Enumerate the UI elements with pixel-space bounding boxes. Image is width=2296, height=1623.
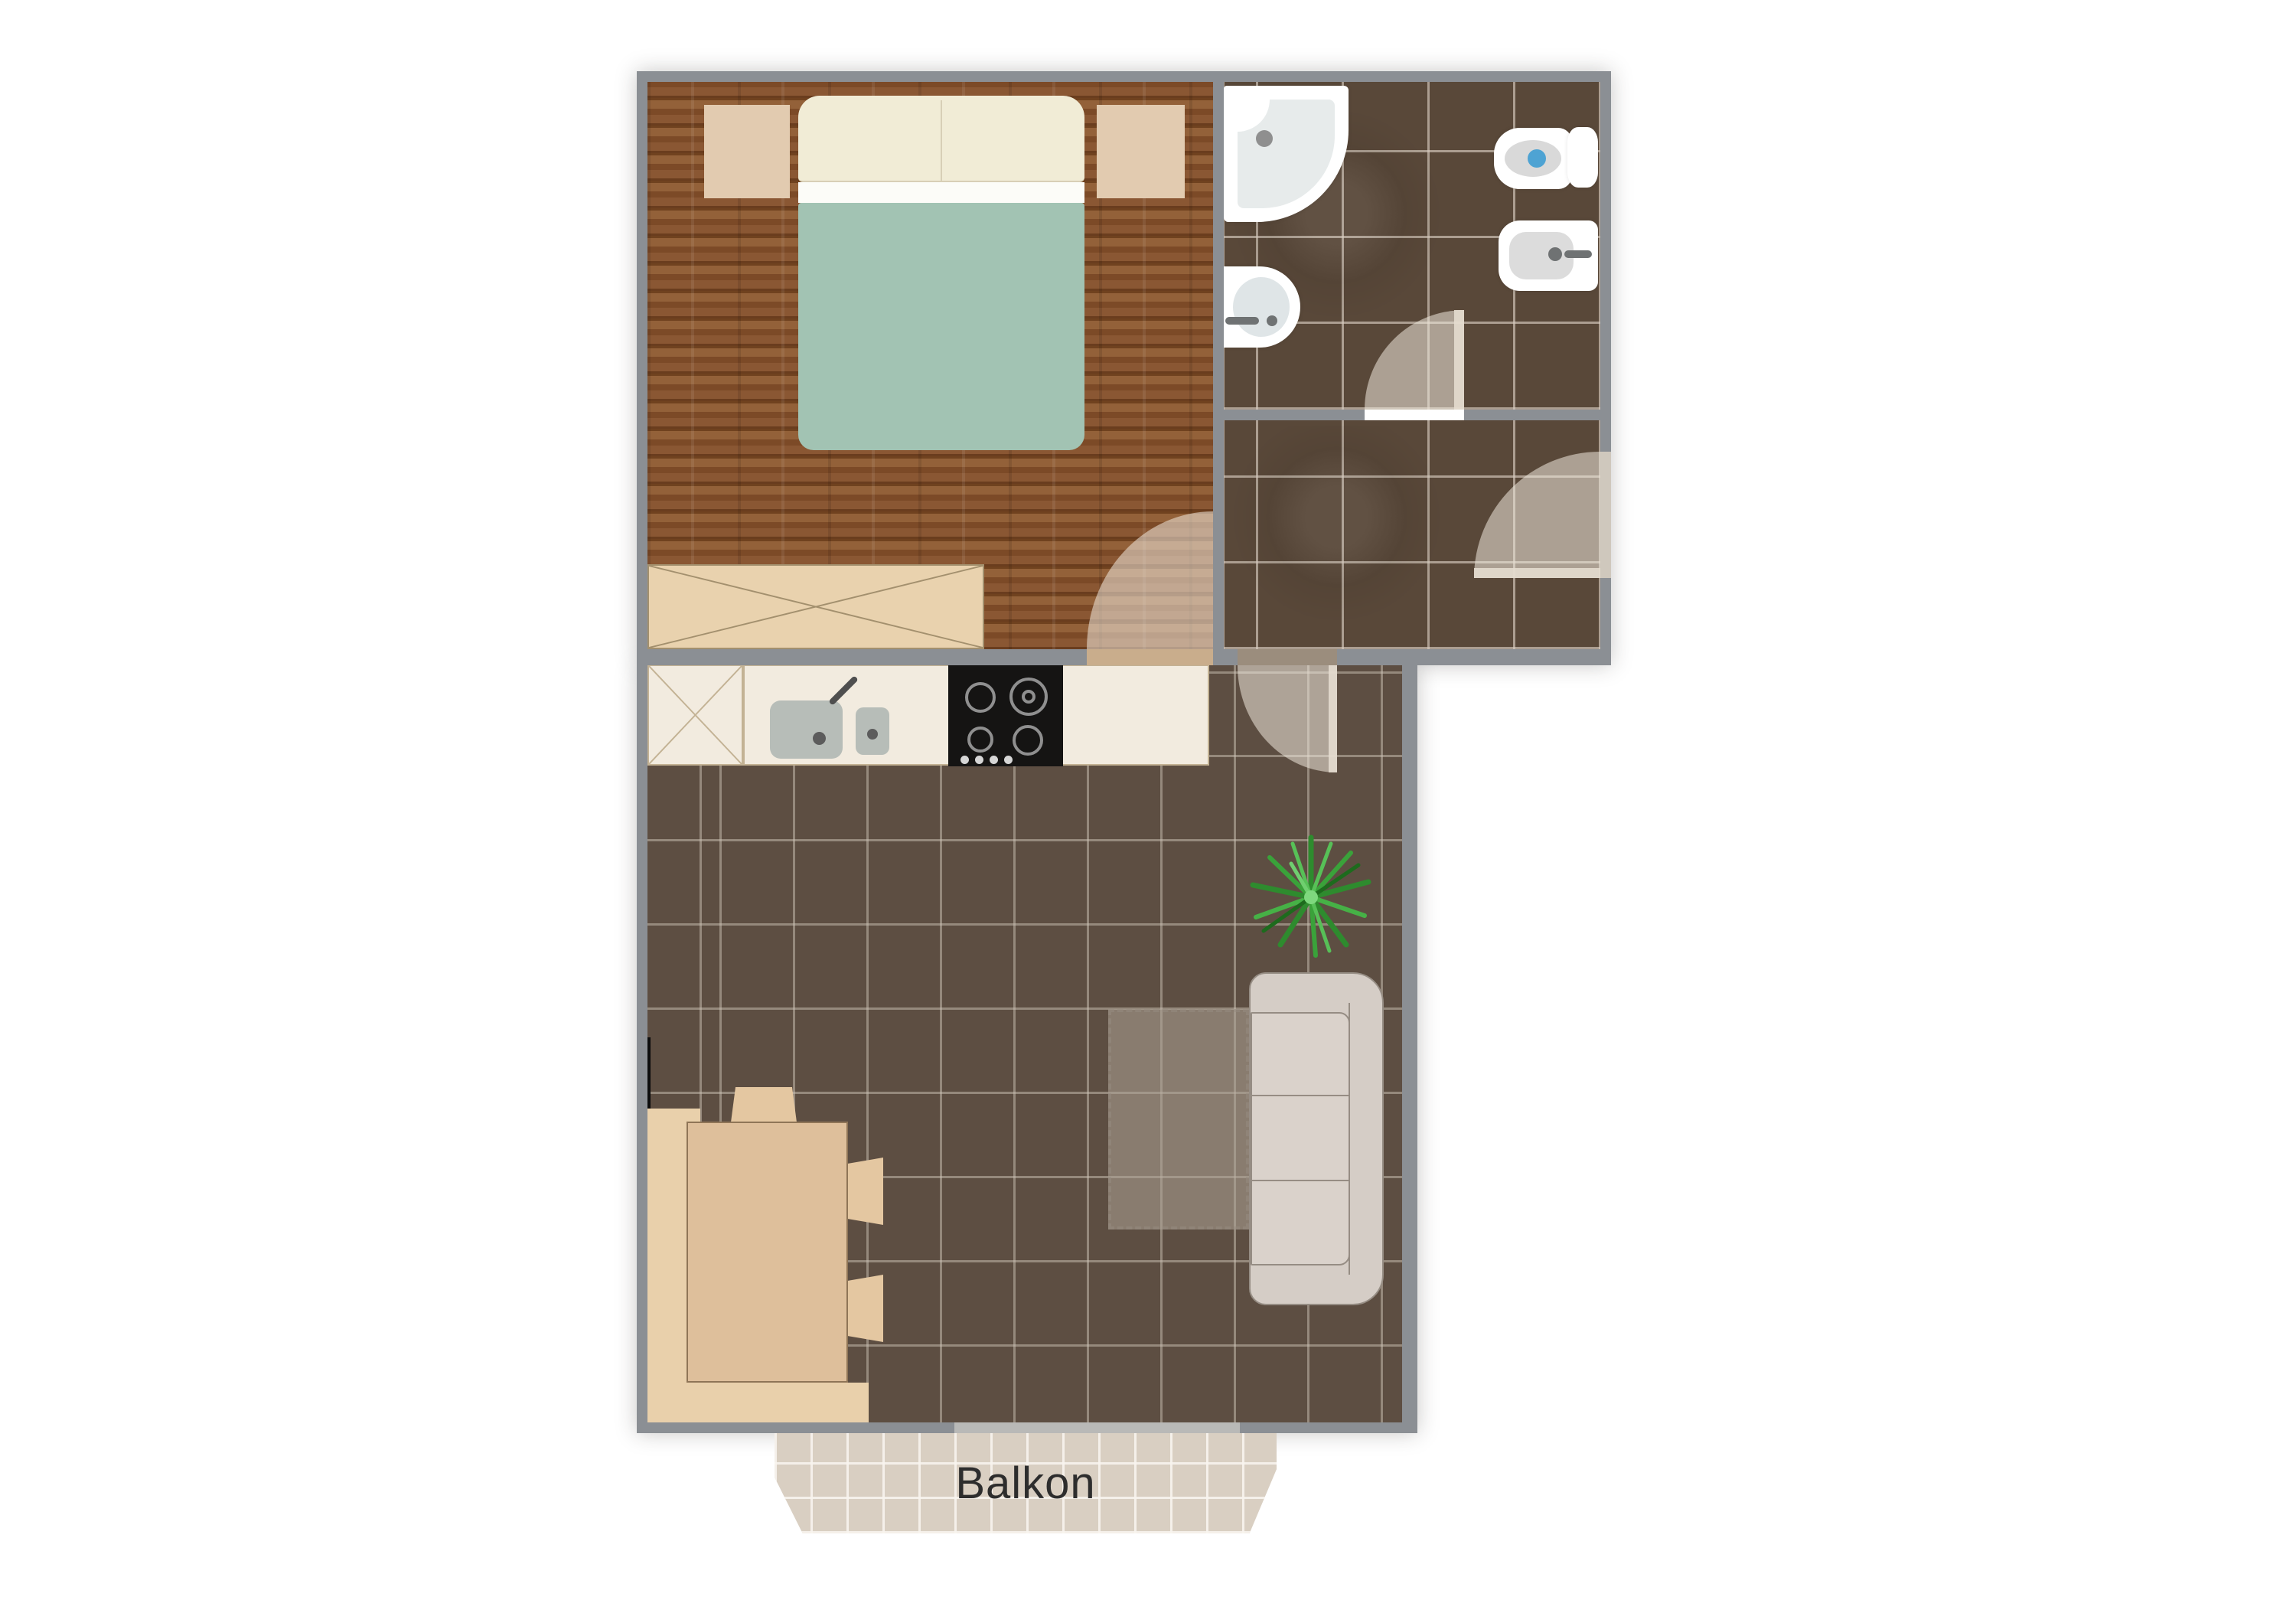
kitchen-door-leaf: [1329, 665, 1337, 772]
wardrobe-x-mark: [649, 566, 983, 648]
floor-plan: Balkon: [0, 0, 2296, 1623]
bidet-bowl: [1509, 232, 1574, 279]
bed-blanket: [798, 203, 1084, 450]
shower-drain: [1256, 130, 1273, 147]
kitchen-sink: [770, 698, 892, 759]
bedroom-door-opening: [1087, 649, 1213, 665]
cooktop-knob-1: [960, 756, 969, 764]
entrance-door-leaf: [1474, 568, 1600, 578]
dining-table: [687, 1122, 848, 1383]
cooktop-knob-3: [990, 756, 998, 764]
cabinet-x-mark: [649, 666, 742, 764]
entrance-opening: [1600, 452, 1611, 578]
sofa-cushion-1: [1251, 1012, 1350, 1096]
toilet-water: [1528, 149, 1546, 168]
double-bed: [798, 96, 1084, 450]
burner-bottom-right: [1013, 725, 1043, 756]
burner-top-right-inner: [1022, 690, 1035, 704]
toilet-cistern: [1567, 127, 1598, 188]
wall-left: [637, 71, 647, 1433]
bidet-faucet-handle: [1564, 250, 1592, 258]
wall-bedroom-bottom: [647, 649, 1087, 665]
sofa: [1249, 972, 1384, 1305]
sofa-cushion-2: [1251, 1095, 1350, 1181]
wall-bath-hall-2: [1464, 410, 1600, 420]
kitchen-counter-corner-cabinet: [647, 665, 743, 766]
wall-top: [637, 71, 1611, 82]
rug: [1108, 1009, 1249, 1229]
bathroom-door-leaf: [1454, 310, 1464, 410]
washbasin-faucet: [1225, 317, 1259, 325]
balcony: Balkon: [775, 1433, 1277, 1533]
drainer-drain: [867, 729, 878, 740]
wall-bath-hall-1: [1224, 410, 1365, 420]
balcony-label: Balkon: [775, 1458, 1277, 1509]
sink-drain: [813, 732, 826, 745]
bidet-faucet: [1548, 247, 1562, 261]
wall-right-upper: [1600, 71, 1611, 452]
dining-chair-right-2: [848, 1275, 883, 1342]
sofa-cushion-3: [1251, 1180, 1350, 1265]
plant-icon: [1246, 832, 1376, 962]
pillow-divider: [941, 100, 942, 181]
dining-chair-right-1: [848, 1158, 883, 1225]
bed-sheet-fold: [798, 182, 1084, 203]
wall-hall-bottom-2: [1337, 649, 1611, 665]
burner-top-left: [965, 682, 996, 713]
bidet: [1499, 220, 1598, 291]
burner-bottom-left: [967, 727, 993, 753]
sink-basin: [770, 700, 843, 759]
balcony-door: [954, 1422, 1240, 1433]
bench-bottom: [647, 1383, 869, 1425]
wardrobe: [647, 564, 984, 649]
wall-living-right: [1402, 665, 1417, 1433]
cooktop: [948, 661, 1063, 766]
washbasin-drain: [1267, 315, 1277, 326]
wall-bedroom-bathroom: [1213, 82, 1224, 665]
washbasin-bowl: [1233, 277, 1290, 337]
nightstand-left: [704, 105, 790, 198]
cooktop-knob-4: [1004, 756, 1013, 764]
cooktop-knob-2: [975, 756, 983, 764]
potted-plant: [1246, 832, 1376, 962]
wall-hall-bottom-1: [1213, 649, 1238, 665]
kitchen-door-opening: [1238, 649, 1337, 665]
dining-chair-top: [731, 1087, 797, 1122]
nightstand-right: [1097, 105, 1185, 198]
toilet: [1494, 127, 1599, 190]
